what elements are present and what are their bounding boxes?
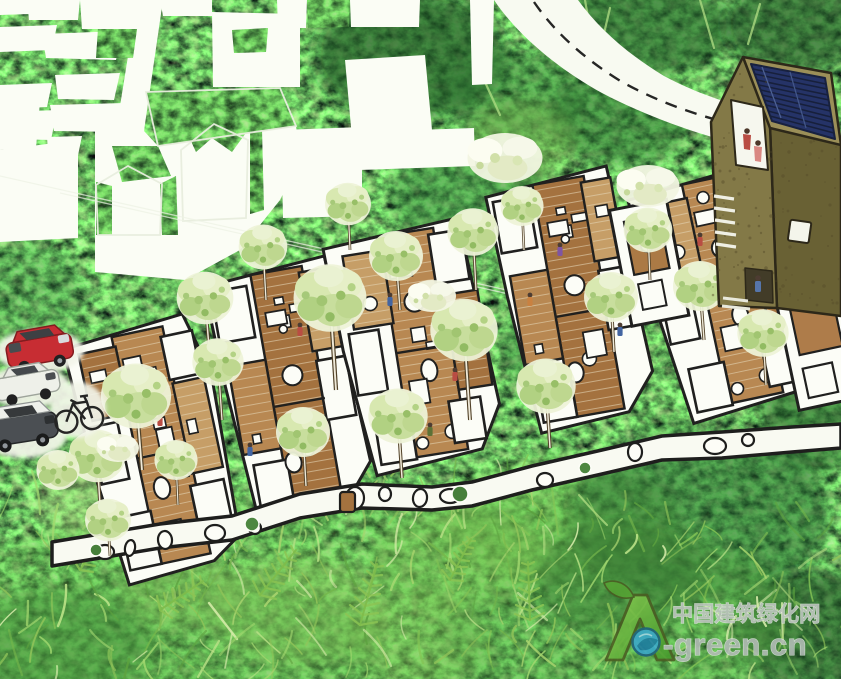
svg-text:中国建筑绿化网: 中国建筑绿化网 xyxy=(672,602,820,626)
svg-text:-green.cn: -green.cn xyxy=(663,627,807,662)
